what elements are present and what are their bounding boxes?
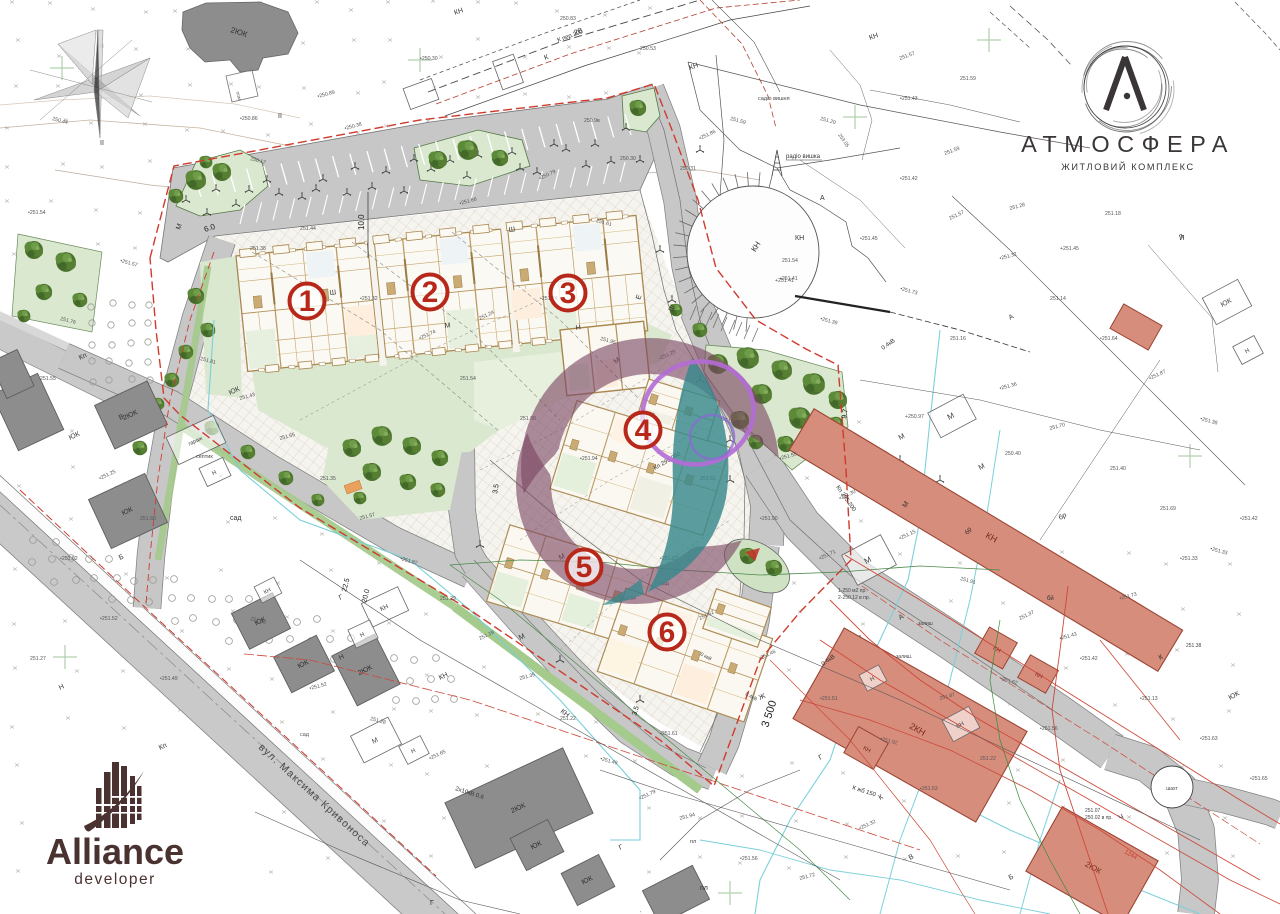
svg-text:ЮК: ЮК (68, 430, 82, 441)
svg-text:•251.33: •251.33 (1180, 556, 1198, 562)
svg-text:•251.43: •251.43 (900, 96, 918, 102)
svg-text:•251.42: •251.42 (900, 176, 918, 182)
svg-text:251.54: 251.54 (460, 376, 476, 382)
svg-text:•251.51: •251.51 (820, 696, 838, 702)
svg-text:+251.41: +251.41 (775, 278, 794, 284)
svg-text:Г: Г (430, 900, 434, 907)
svg-text:251.60: 251.60 (140, 516, 156, 522)
svg-text:251.55: 251.55 (40, 376, 56, 382)
svg-text:сад: сад (230, 515, 241, 522)
svg-text:КН: КН (453, 7, 464, 17)
svg-text:251.94: 251.94 (679, 812, 696, 822)
svg-text:+250.97: +250.97 (905, 414, 924, 420)
svg-text:•251.65: •251.65 (1250, 776, 1268, 782)
svg-text:Кп: Кп (158, 742, 168, 752)
svg-text:Н: Н (58, 683, 66, 691)
svg-text:•251.73: •251.73 (899, 286, 918, 296)
svg-text:+251.45: +251.45 (1060, 246, 1079, 252)
svg-text:•251.64: •251.64 (1100, 336, 1118, 342)
svg-text:пл: пл (700, 885, 708, 892)
svg-text:•251.32: •251.32 (360, 296, 378, 302)
svg-text:•251.13: •251.13 (1140, 696, 1158, 702)
svg-text:2: 2 (422, 276, 439, 309)
svg-text:•251.94: •251.94 (580, 456, 598, 462)
svg-text:Г: Г (818, 754, 825, 762)
svg-text:251.28: 251.28 (1009, 202, 1026, 212)
svg-text:КН: КН (795, 235, 804, 242)
svg-text:•251.65: •251.65 (428, 749, 447, 762)
svg-text:251.22: 251.22 (980, 756, 996, 762)
svg-text:6: 6 (659, 616, 676, 649)
svg-text:септик: септик (196, 454, 213, 460)
svg-text:Б: Б (118, 553, 125, 561)
svg-text:250.44: 250.44 (51, 116, 68, 126)
svg-text:•251.36: •251.36 (999, 382, 1018, 392)
svg-text:1-250 м2 пр.: 1-250 м2 пр. (838, 588, 867, 594)
svg-text:•251.87: •251.87 (1148, 369, 1167, 382)
svg-text:1: 1 (299, 285, 316, 318)
svg-text:К жб 150: К жб 150 (851, 785, 877, 798)
svg-text:251.07: 251.07 (1085, 808, 1101, 814)
svg-text:251.59: 251.59 (729, 116, 746, 126)
svg-text:ІІ: ІІ (278, 113, 282, 120)
svg-text:251.38: 251.38 (250, 246, 266, 252)
svg-text:251.57: 251.57 (899, 51, 916, 62)
svg-text:253.05: 253.05 (836, 133, 850, 149)
svg-text:•251.57: •251.57 (119, 258, 138, 268)
svg-text:•251.52: •251.52 (100, 616, 118, 622)
svg-text:Ш: Ш (329, 289, 336, 297)
svg-text:залиш: залиш (918, 621, 933, 627)
svg-text:Л: Л (1180, 235, 1185, 242)
svg-text:250.83: 250.83 (560, 16, 576, 22)
svg-text:Г: Г (618, 844, 625, 852)
svg-text:бй: бй (1047, 595, 1054, 602)
svg-text:•251.32: •251.32 (858, 819, 877, 832)
svg-text:•251.49: •251.49 (599, 756, 618, 766)
svg-text:251.20: 251.20 (819, 116, 836, 126)
svg-text:3: 3 (560, 277, 577, 310)
svg-text:4: 4 (635, 414, 652, 447)
svg-text:М: М (978, 463, 987, 472)
svg-text:251.40: 251.40 (1110, 466, 1126, 472)
svg-text:•250.86: •250.86 (240, 116, 258, 122)
svg-text:251.18: 251.18 (1105, 211, 1121, 217)
svg-text:•251.42: •251.42 (1240, 516, 1258, 522)
svg-text:•251.61: •251.61 (660, 731, 678, 737)
svg-text:250.31: 250.31 (680, 166, 696, 172)
svg-text:250.30: 250.30 (620, 156, 636, 162)
svg-text:•251.15: •251.15 (898, 529, 917, 542)
svg-text:М: М (898, 433, 907, 442)
svg-text:•251.62: •251.62 (60, 556, 78, 562)
svg-text:ЮК: ЮК (1228, 690, 1242, 702)
svg-text:•251.49: •251.49 (160, 676, 178, 682)
svg-text:К: К (878, 793, 886, 802)
svg-text:251.54: 251.54 (782, 258, 798, 264)
svg-text:251.59: 251.59 (960, 76, 976, 82)
svg-text:АТМОСФЕРА: АТМОСФЕРА (1021, 131, 1235, 157)
svg-text:В: В (908, 853, 916, 862)
svg-text:•251.45: •251.45 (860, 236, 878, 242)
svg-text:•251.54: •251.54 (28, 210, 46, 216)
svg-text:•251.52: •251.52 (309, 682, 328, 692)
svg-text:9.7: 9.7 (841, 408, 850, 419)
svg-text:пл: пл (690, 839, 696, 845)
svg-text:•251.63: •251.63 (1200, 736, 1218, 742)
svg-text:шахт: шахт (1166, 786, 1178, 792)
svg-text:251.69: 251.69 (1160, 506, 1176, 512)
svg-text:251.35: 251.35 (519, 672, 536, 682)
svg-text:250.40: 250.40 (1005, 451, 1021, 457)
svg-text:•251.33: •251.33 (1209, 546, 1228, 556)
svg-text:•251.39: •251.39 (819, 316, 838, 326)
svg-text:залиш.: залиш. (896, 654, 912, 660)
svg-text:бр: бр (1057, 511, 1068, 522)
svg-text:251.59: 251.59 (944, 146, 961, 157)
svg-text:сад: сад (300, 732, 310, 738)
svg-text:251.16: 251.16 (950, 336, 966, 342)
svg-text:251.70: 251.70 (1049, 422, 1066, 432)
svg-text:КН: КН (868, 32, 879, 42)
svg-text:•251.38: •251.38 (1199, 416, 1218, 426)
svg-text:сад/о вишня: сад/о вишня (758, 96, 790, 102)
svg-text:•251.86: •251.86 (698, 129, 717, 142)
svg-text:251.35: 251.35 (320, 476, 336, 482)
svg-text:•250.30: •250.30 (420, 56, 438, 62)
svg-text:251.27: 251.27 (30, 656, 46, 662)
svg-text:•251.90: •251.90 (760, 516, 778, 522)
svg-text:251.72: 251.72 (799, 872, 816, 882)
svg-text:К: К (543, 54, 550, 62)
svg-text:•251.56: •251.56 (1040, 726, 1058, 732)
svg-text:251.44: 251.44 (300, 226, 316, 232)
svg-text:•250.38: •250.38 (344, 122, 363, 132)
svg-text:ІІ: ІІ (100, 140, 104, 147)
svg-text:•251.79: •251.79 (638, 789, 657, 802)
svg-text:251.37: 251.37 (1018, 610, 1035, 622)
svg-text:22.5: 22.5 (341, 577, 351, 592)
svg-text:•251.25: •251.25 (98, 469, 117, 482)
svg-text:А: А (1008, 313, 1016, 322)
svg-text:КН: КН (688, 62, 699, 72)
svg-text:2-250.12 в пр.: 2-250.12 в пр. (838, 595, 870, 601)
svg-text:Ч: Ч (1118, 813, 1126, 822)
svg-text:•251.32: •251.32 (999, 252, 1018, 262)
svg-text:250.02 в пр.: 250.02 в пр. (1085, 815, 1113, 821)
svg-text:251.22: 251.22 (560, 716, 576, 722)
svg-text:developer: developer (74, 871, 156, 888)
svg-text:Ж: Ж (758, 693, 767, 702)
svg-text:М: М (444, 322, 451, 330)
svg-text:•251.56: •251.56 (740, 856, 758, 862)
svg-text:251.91: 251.91 (959, 576, 976, 586)
svg-text:•250.89: •250.89 (317, 90, 336, 100)
svg-text:251.29: 251.29 (440, 596, 456, 602)
svg-text:251.57: 251.57 (948, 210, 965, 222)
svg-text:Н: Н (575, 324, 581, 332)
svg-text:10.0: 10.0 (357, 214, 366, 230)
svg-text:•251.42: •251.42 (1080, 656, 1098, 662)
svg-text:251.14: 251.14 (1050, 296, 1066, 302)
svg-text:250.9в: 250.9в (584, 118, 600, 124)
svg-text:А: А (820, 195, 825, 202)
svg-text:Alliance: Alliance (46, 831, 184, 872)
svg-text:251.38: 251.38 (1186, 643, 1202, 649)
svg-text:ЖИТЛОВИЙ КОМПЛЕКС: ЖИТЛОВИЙ КОМПЛЕКС (1061, 161, 1194, 172)
svg-text:5: 5 (576, 551, 593, 584)
svg-text:•251.53: •251.53 (920, 786, 938, 792)
svg-text:250.53: 250.53 (640, 46, 656, 52)
svg-text:Б: Б (1008, 873, 1016, 882)
svg-text:радіо вишка: радіо вишка (786, 154, 821, 160)
svg-text:3 500: 3 500 (759, 699, 779, 729)
svg-text:Ш: Ш (508, 226, 515, 234)
svg-text:Г: Г (338, 594, 345, 602)
svg-text:0.4кВ: 0.4кВ (881, 338, 897, 352)
